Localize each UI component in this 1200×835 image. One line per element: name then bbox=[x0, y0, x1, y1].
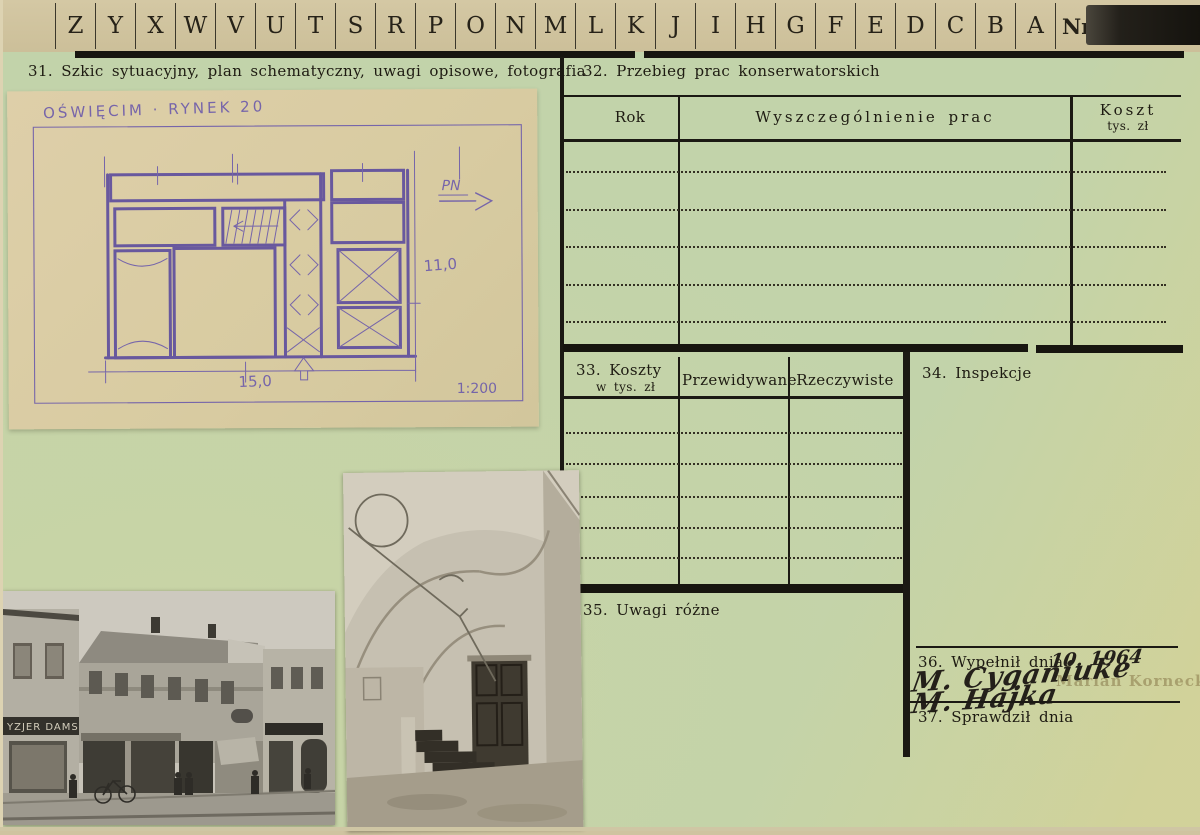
tab-letter-a: A bbox=[1015, 3, 1055, 49]
tab-letter-v: V bbox=[215, 3, 255, 49]
shop-sign-text: YZJER DAMSKI bbox=[6, 722, 90, 733]
floor-plan-sketch-paper: OŚWIĘCIM · RYNEK 20 bbox=[7, 89, 539, 430]
tab-letter-m: M bbox=[535, 3, 575, 49]
table33-col-przewidywane: Przewidywane bbox=[682, 371, 786, 389]
table32-col-koszt-sub: tys. zł bbox=[1078, 119, 1178, 133]
tab-letter-u: U bbox=[255, 3, 295, 49]
sketch-scale: 1:200 bbox=[457, 381, 497, 397]
tab-letter-z: Z bbox=[55, 3, 95, 49]
page-edge-bottom bbox=[0, 827, 1200, 831]
archway-photograph bbox=[343, 470, 583, 831]
table32-row-line bbox=[566, 209, 1166, 211]
scan-shadow-artifact bbox=[1086, 5, 1200, 45]
table32-row-line bbox=[566, 284, 1166, 286]
tab-letter-j: J bbox=[655, 3, 695, 49]
table33-row-line bbox=[566, 463, 902, 465]
tab-letter-l: L bbox=[575, 3, 615, 49]
floor-plan-drawing: OŚWIĘCIM · RYNEK 20 bbox=[7, 89, 539, 430]
tab-letter-g: G bbox=[775, 3, 815, 49]
section-34-label: 34. Inspekcje bbox=[922, 364, 1032, 382]
tab-letter-p: P bbox=[415, 3, 455, 49]
tab-letter-s: S bbox=[335, 3, 375, 49]
tab-letter-y: Y bbox=[95, 3, 135, 49]
table32-col-koszt: Koszt bbox=[1078, 101, 1178, 119]
table32-col-prace: Wyszczególnienie prac bbox=[690, 108, 1060, 126]
table32-bottom-bar-right bbox=[1036, 345, 1183, 353]
tab-letter-b: B bbox=[975, 3, 1015, 49]
sketch-north-label: PN bbox=[442, 178, 462, 194]
table32-col-rule-2 bbox=[1070, 95, 1073, 345]
table33-row-line bbox=[566, 527, 902, 529]
table32-col-rule-1 bbox=[678, 95, 680, 345]
table33-row-line bbox=[566, 432, 902, 434]
table33-col-rule-2 bbox=[788, 357, 790, 587]
table33-row-line bbox=[566, 496, 902, 498]
section-35-label: 35. Uwagi różne bbox=[583, 601, 720, 619]
sketch-dim-width: 15,0 bbox=[238, 372, 272, 391]
table32-col-rok: Rok bbox=[590, 108, 670, 126]
tab-letter-e: E bbox=[855, 3, 895, 49]
strip-bottom-rule-left bbox=[75, 51, 635, 58]
tab-letter-i: I bbox=[695, 3, 735, 49]
table32-top-rule bbox=[563, 95, 1181, 97]
table33-bottom-bar bbox=[563, 584, 908, 593]
sketch-title: OŚWIĘCIM · RYNEK 20 bbox=[43, 96, 266, 122]
tab-letter-r: R bbox=[375, 3, 415, 49]
tab-letter-o: O bbox=[455, 3, 495, 49]
sketch-dim-height: 11,0 bbox=[423, 255, 458, 275]
page-edge-left bbox=[0, 0, 3, 831]
section-37-label: 37. Sprawdził dnia bbox=[918, 708, 1074, 726]
street-photograph: YZJER DAMSKI bbox=[3, 591, 335, 825]
table33-col-rzeczywiste: Rzeczywiste bbox=[792, 371, 898, 389]
table32-row-line bbox=[566, 246, 1166, 248]
tab-letter-k: K bbox=[615, 3, 655, 49]
table33-row-line bbox=[566, 557, 902, 559]
section-31-label: 31. Szkic sytuacyjny, plan schematyczny,… bbox=[28, 62, 586, 80]
tab-letter-h: H bbox=[735, 3, 775, 49]
tab-letter-n: N bbox=[495, 3, 535, 49]
section-33-label: 33. Koszty bbox=[576, 361, 662, 379]
table33-header-rule bbox=[563, 396, 908, 399]
record-card: Z Y X W V U T S R P O N M L K J I H G F … bbox=[0, 0, 1200, 831]
tab-letter-d: D bbox=[895, 3, 935, 49]
table32-bottom-bar-left bbox=[563, 344, 1028, 352]
table32-row-line bbox=[566, 321, 1166, 323]
section-37-top-rule bbox=[905, 701, 1180, 703]
tab-letter-w: W bbox=[175, 3, 215, 49]
section-32-label: 32. Przebieg prac konserwatorskich bbox=[583, 62, 880, 80]
section-33-sub: w tys. zł bbox=[596, 380, 655, 394]
tab-letter-t: T bbox=[295, 3, 335, 49]
tab-letter-f: F bbox=[815, 3, 855, 49]
tab-letter-c: C bbox=[935, 3, 975, 49]
table33-col-rule-1 bbox=[678, 357, 680, 587]
strip-bottom-rule-right bbox=[644, 51, 1184, 58]
alphabet-tab-strip: Z Y X W V U T S R P O N M L K J I H G F … bbox=[0, 0, 1200, 52]
table32-row-line bbox=[566, 171, 1166, 173]
tab-letter-x: X bbox=[135, 3, 175, 49]
table32-header-rule bbox=[563, 139, 1181, 142]
